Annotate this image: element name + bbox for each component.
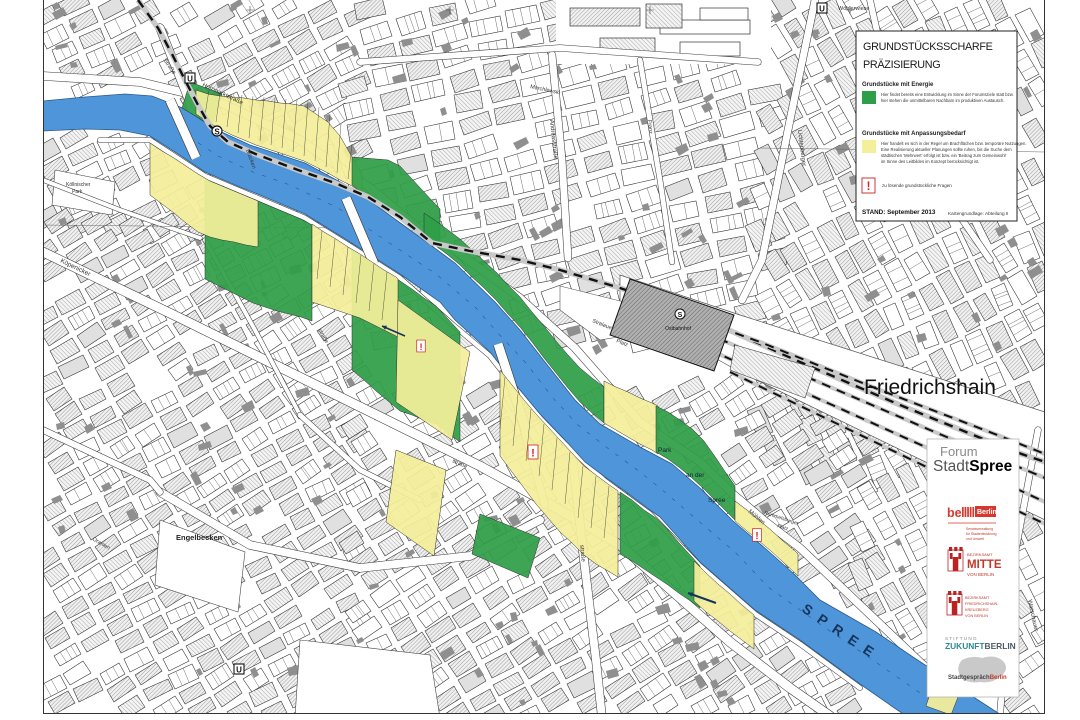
svg-text:VON BERLIN: VON BERLIN	[965, 614, 988, 618]
svg-text:StadtgesprächBerlin: StadtgesprächBerlin	[948, 675, 1007, 681]
svg-text:ZUKUNFTBERLIN: ZUKUNFTBERLIN	[945, 641, 1016, 651]
svg-text:U: U	[236, 666, 242, 675]
svg-text:städtischen 'Mehrwert' erfolgt: städtischen 'Mehrwert' erfolgt ist bzw. …	[881, 153, 1007, 158]
svg-text:BEZIRKSAMT: BEZIRKSAMT	[965, 596, 990, 600]
svg-text:!: !	[755, 531, 758, 542]
svg-text:Köllnischer: Köllnischer	[66, 182, 91, 188]
svg-text:und Umwelt: und Umwelt	[966, 537, 984, 541]
svg-text:Grundstücke mit Anpassungsbeda: Grundstücke mit Anpassungsbedarf	[862, 131, 966, 137]
svg-text:zu lösende grundstückliche Fra: zu lösende grundstückliche Fragen	[882, 183, 952, 188]
svg-text:für Stadtentwicklung: für Stadtentwicklung	[966, 532, 997, 536]
svg-text:Spree: Spree	[708, 497, 726, 504]
svg-text:PRÄZISIERUNG: PRÄZISIERUNG	[863, 59, 940, 71]
svg-text:StadtSpree: StadtSpree	[933, 458, 1013, 475]
svg-text:MITTE: MITTE	[967, 559, 1002, 571]
svg-text:Ostbahnhof: Ostbahnhof	[665, 326, 691, 332]
svg-text:S: S	[678, 312, 683, 319]
svg-text:STAND: September 2013: STAND: September 2013	[862, 209, 936, 216]
svg-text:Park: Park	[72, 189, 83, 195]
svg-text:hier stehen die unmittelbaren: hier stehen die unmittelbaren Nachbarn i…	[881, 98, 1004, 103]
svg-text:an der: an der	[686, 472, 705, 479]
svg-text:Berlin: Berlin	[977, 509, 997, 516]
svg-text:Friedrichshain: Friedrichshain	[864, 376, 996, 399]
svg-text:U: U	[187, 75, 193, 84]
svg-text:Kartengrundlage: Abteilung II: Kartengrundlage: Abteilung II	[948, 211, 1008, 216]
svg-text:!: !	[531, 448, 535, 460]
svg-text:Senatsverwaltung: Senatsverwaltung	[966, 527, 993, 531]
svg-text:Engelbecken: Engelbecken	[176, 533, 223, 542]
svg-text:U: U	[819, 5, 825, 14]
svg-text:VON BERLIN: VON BERLIN	[967, 572, 994, 577]
svg-text:Forum: Forum	[940, 444, 978, 459]
svg-text:Park: Park	[658, 447, 672, 454]
svg-text:S: S	[214, 128, 220, 137]
svg-text:Hier handelt es sich in der Re: Hier handelt es sich in der Regel um Bra…	[881, 141, 1026, 146]
svg-text:Grundstücke mit Energie: Grundstücke mit Energie	[862, 82, 934, 88]
svg-text:be: be	[947, 506, 962, 520]
svg-text:!: !	[419, 342, 422, 352]
svg-text:KREUZBERG: KREUZBERG	[965, 608, 989, 612]
svg-text:Franz: Franz	[646, 120, 653, 135]
svg-text:!: !	[867, 179, 871, 193]
svg-text:GRUNDSTÜCKSSCHARFE: GRUNDSTÜCKSSCHARFE	[863, 41, 993, 53]
svg-text:BEZIRKSAMT: BEZIRKSAMT	[967, 552, 993, 557]
svg-text:im Sinne des Leitbildes im Kon: im Sinne des Leitbildes im Konzept berüc…	[881, 159, 979, 164]
svg-text:FRIEDRICHSHAIN-: FRIEDRICHSHAIN-	[965, 602, 999, 606]
svg-text:Wöhlerwiese: Wöhlerwiese	[838, 6, 869, 12]
svg-text:Eine Realisierung aktueller Pl: Eine Realisierung aktueller Planungen so…	[881, 147, 1012, 152]
svg-text:Hier findet bereits eine Entwi: Hier findet bereits eine Entwicklung im …	[881, 92, 1014, 97]
